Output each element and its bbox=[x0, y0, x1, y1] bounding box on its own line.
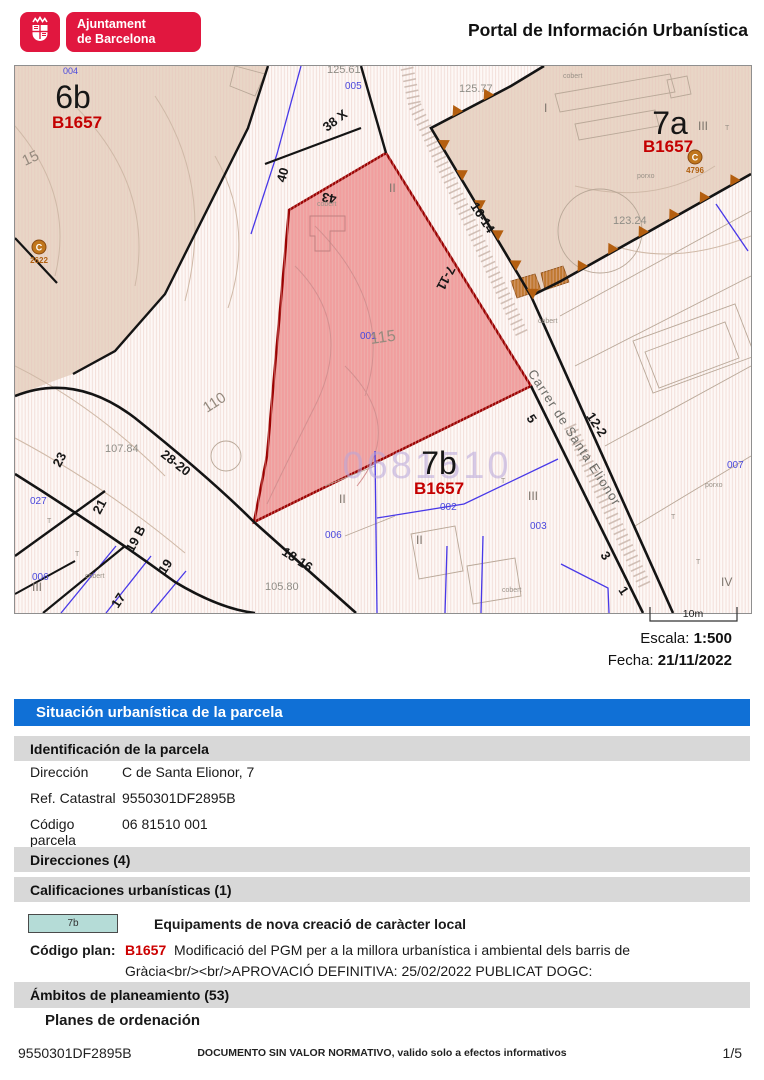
zone-7a-label: 7a bbox=[652, 105, 688, 141]
map-label-006-center: 006 bbox=[325, 530, 342, 541]
map-label-003: 003 bbox=[530, 521, 547, 532]
map-label-005: 005 bbox=[345, 81, 362, 92]
map-label-cobert-d: cobert bbox=[502, 587, 522, 594]
scale-bar-label: 10m bbox=[683, 608, 704, 620]
field-label: Ref. Catastral bbox=[30, 790, 122, 806]
map-label-007: 007 bbox=[727, 460, 744, 471]
escala-value: 1:500 bbox=[694, 630, 732, 647]
logo-wordmark: Ajuntament de Barcelona bbox=[66, 12, 201, 52]
calificacion-row: 7b Equipaments de nova creació de caràct… bbox=[28, 914, 466, 933]
cadastral-map: C 2622 C 4796 0681510 004 6b B1657 15 11… bbox=[14, 65, 752, 614]
field-value: C de Santa Elionor, 7 bbox=[122, 764, 254, 780]
map-label-105-80: 105.80 bbox=[265, 581, 299, 593]
footer-notice: DOCUMENTO SIN VALOR NORMATIVO, valido so… bbox=[0, 1047, 764, 1059]
roman-ii-a: II bbox=[339, 492, 346, 506]
section-ambitos-header: Ámbitos de planeamiento (53) bbox=[14, 982, 750, 1008]
map-label-t1: T bbox=[725, 125, 730, 132]
map-label-t4: T bbox=[671, 514, 676, 521]
map-label-123-24: 123.24 bbox=[613, 215, 647, 227]
map-label-125-77: 125.77 bbox=[459, 83, 493, 95]
map-label-107-84: 107.84 bbox=[105, 443, 139, 455]
field-value: 9550301DF2895B bbox=[122, 790, 236, 806]
field-value: 06 81510 001 bbox=[122, 816, 208, 848]
roman-ii-b: II bbox=[416, 533, 423, 547]
section-direcciones-header: Direcciones (4) bbox=[14, 847, 750, 872]
zone-6b-label: 6b bbox=[55, 79, 91, 115]
section-identificacion-header: Identificación de la parcela bbox=[14, 736, 750, 761]
map-label-cobert-b: cobert bbox=[317, 201, 337, 208]
field-codigo-parcela: Código parcela 06 81510 001 bbox=[30, 816, 208, 848]
roman-ii-parcel: II bbox=[389, 181, 396, 195]
map-label-cobert-a: cobert bbox=[85, 573, 105, 580]
map-label-027: 027 bbox=[30, 496, 47, 507]
plan-code-7b: B1657 bbox=[414, 479, 464, 498]
page: { "header": { "logo_line1": "Ajuntament"… bbox=[0, 0, 764, 1080]
map-meta: Escala: 1:500 Fecha: 21/11/2022 bbox=[608, 628, 732, 672]
roman-iv: IV bbox=[721, 575, 732, 589]
plan-code-7a: B1657 bbox=[643, 137, 693, 156]
map-label-125-61: 125.61 bbox=[327, 66, 361, 76]
c-badge-number: 2622 bbox=[30, 256, 48, 265]
zone-7b-label: 7b bbox=[421, 445, 457, 481]
c-badge-number: 4796 bbox=[686, 166, 704, 175]
page-title: Portal de Información Urbanística bbox=[468, 20, 748, 41]
section-calificaciones-header: Calificaciones urbanísticas (1) bbox=[14, 877, 750, 902]
barcelona-logo: Ajuntament de Barcelona bbox=[20, 12, 201, 52]
roman-iii-left: III bbox=[32, 580, 42, 594]
map-label-t3: T bbox=[75, 551, 80, 558]
escala-label: Escala: bbox=[640, 630, 689, 647]
section-situacion-header: Situación urbanística de la parcela bbox=[14, 699, 750, 726]
field-label: Dirección bbox=[30, 764, 122, 780]
logo-line2: de Barcelona bbox=[77, 32, 189, 47]
fecha-value: 21/11/2022 bbox=[658, 652, 732, 669]
map-label-002: 002 bbox=[440, 502, 457, 513]
map-label-t6: T bbox=[47, 518, 52, 525]
roman-iii-right: III bbox=[528, 489, 538, 503]
map-label-t2: T bbox=[501, 478, 506, 485]
map-label-004: 004 bbox=[63, 66, 78, 76]
fecha-line: Fecha: 21/11/2022 bbox=[608, 650, 732, 672]
plan-code-6b: B1657 bbox=[52, 113, 102, 132]
escala-line: Escala: 1:500 bbox=[608, 628, 732, 650]
cadastral-map-svg: C 2622 C 4796 0681510 004 6b B1657 15 11… bbox=[15, 66, 751, 613]
logo-line1: Ajuntament bbox=[77, 17, 189, 32]
map-label-t5: T bbox=[696, 559, 701, 566]
map-label-cobert-c: cobert bbox=[563, 73, 583, 80]
map-label-porxo-b: porxo bbox=[705, 482, 723, 489]
planes-subtitle: Planes de ordenación bbox=[45, 1012, 200, 1029]
calificacion-swatch: 7b bbox=[28, 914, 118, 933]
roman-i-7a: I bbox=[544, 101, 547, 115]
roman-iii-7a: III bbox=[698, 119, 708, 133]
field-direccion: Dirección C de Santa Elionor, 7 bbox=[30, 764, 254, 780]
codigo-plan-code: B1657 bbox=[125, 942, 166, 958]
footer: 9550301DF2895B DOCUMENTO SIN VALOR NORMA… bbox=[0, 1043, 764, 1063]
map-label-115: 115 bbox=[369, 328, 397, 348]
barcelona-crest-icon bbox=[20, 12, 60, 52]
map-label-cobert-e: cobert bbox=[538, 318, 558, 325]
c-badge-letter: C bbox=[36, 243, 43, 253]
calificacion-label: Equipaments de nova creació de caràcter … bbox=[154, 916, 466, 932]
field-label: Código parcela bbox=[30, 816, 122, 848]
footer-page-number: 1/5 bbox=[723, 1045, 742, 1061]
map-label-porxo-a: porxo bbox=[637, 173, 655, 180]
field-ref-catastral: Ref. Catastral 9550301DF2895B bbox=[30, 790, 236, 806]
fecha-label: Fecha: bbox=[608, 652, 654, 669]
